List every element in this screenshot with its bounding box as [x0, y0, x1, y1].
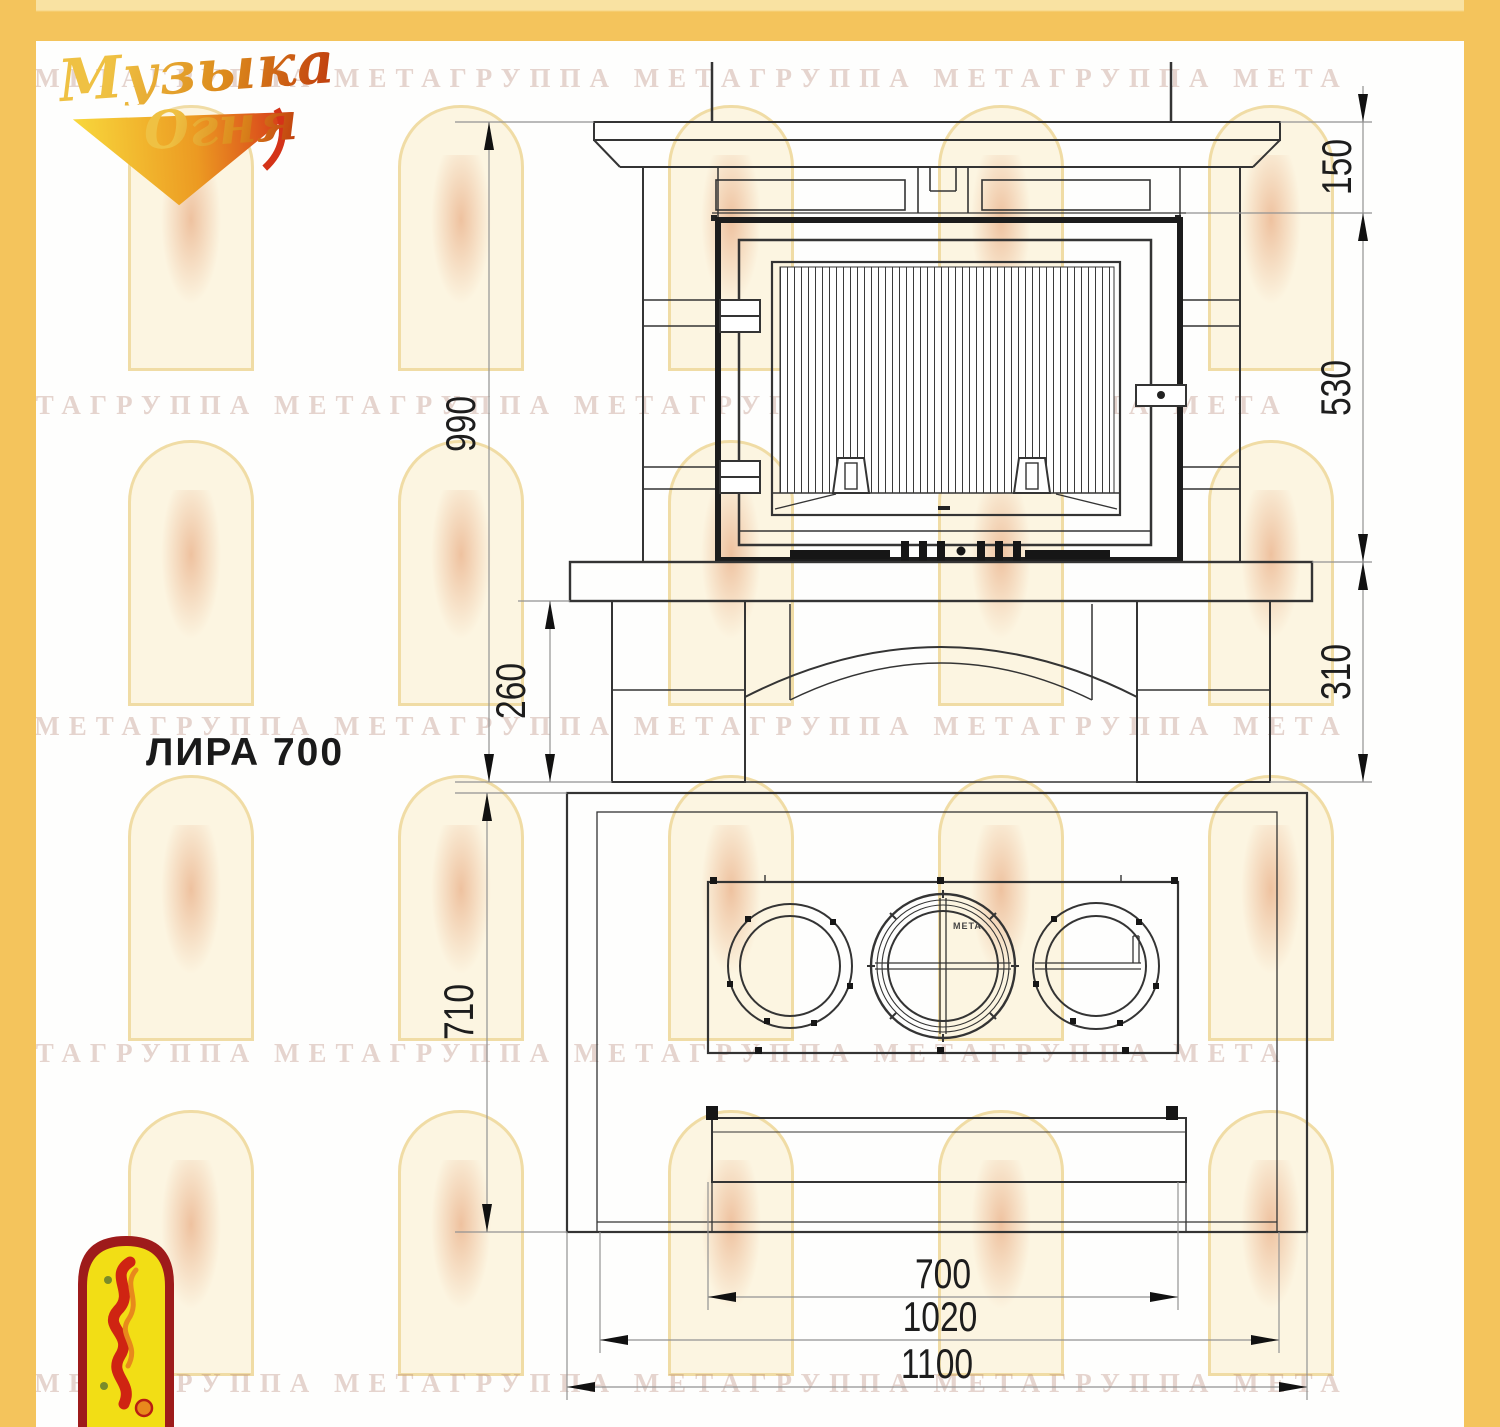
- front-elevation: [570, 62, 1312, 782]
- dim-firebox-to-floor-label: 310: [1315, 644, 1357, 700]
- dim-mantel-to-firebox-label: 150: [1316, 139, 1358, 195]
- dim-total-height-label: 990: [440, 396, 482, 452]
- page: ППА МЕТАГРУППА МЕТАГРУППА МЕТАГРУППА МЕТ…: [0, 0, 1500, 1427]
- dim-firebox-width-label: 700: [915, 1253, 971, 1295]
- logo-text-line2: Огня: [142, 96, 299, 159]
- border-top: [0, 0, 1500, 41]
- flange-bolts: [727, 916, 1159, 1026]
- dim-inner-width-label: 1020: [903, 1296, 978, 1338]
- plan-view: [567, 793, 1307, 1232]
- model-title: ЛИРА 700: [146, 733, 344, 772]
- flue-marking-label: МЕТА: [953, 921, 993, 931]
- dim-base-height-label: 260: [490, 663, 532, 719]
- border-right: [1464, 0, 1500, 1427]
- brand-logo: Музыка Огня: [42, 25, 374, 237]
- corner-emblem-icon: [78, 1236, 174, 1427]
- dim-total-width-label: 1100: [901, 1343, 973, 1385]
- border-left: [0, 0, 36, 1427]
- dim-firebox-height-label: 530: [1315, 360, 1357, 416]
- dim-depth-label: 710: [438, 984, 480, 1040]
